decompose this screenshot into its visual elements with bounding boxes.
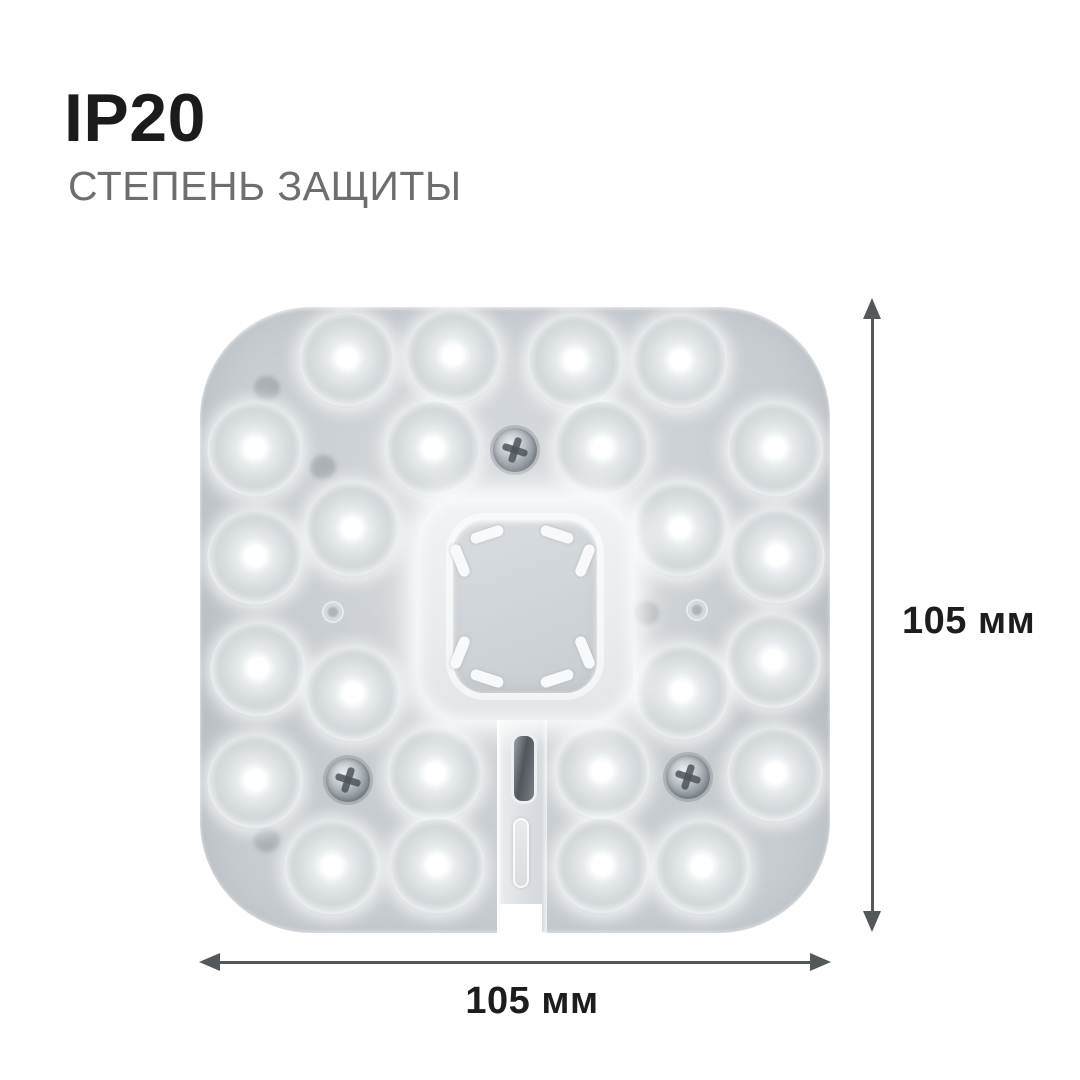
edge-notch-cutout	[500, 904, 542, 935]
pcb-shadow-spot	[254, 376, 280, 400]
led-lens	[729, 509, 825, 605]
magnet-cover	[453, 520, 597, 693]
led-lens	[385, 402, 481, 498]
arrow-left-icon	[199, 953, 220, 971]
height-dimension-label: 105 мм	[902, 602, 1062, 640]
arrow-right-icon	[810, 953, 831, 971]
led-lens	[727, 727, 823, 823]
led-lens	[527, 314, 623, 410]
led-lens	[632, 482, 728, 578]
led-lens	[387, 727, 483, 823]
pcb-shadow-spot	[254, 828, 280, 852]
phillips-screw	[666, 755, 710, 799]
pin-hole	[688, 601, 706, 619]
led-lens	[554, 819, 650, 915]
led-lens	[554, 402, 650, 498]
connector-contact-slot	[511, 733, 537, 804]
pcb-shadow-spot	[310, 455, 336, 479]
led-lens	[207, 734, 303, 830]
led-lens	[207, 402, 303, 498]
led-lens	[405, 309, 501, 405]
pcb-shadow-spot	[633, 601, 659, 625]
led-lens	[654, 820, 750, 916]
led-lens	[207, 510, 303, 606]
width-dimension-label: 105 мм	[452, 982, 612, 1020]
protection-rating-subtitle: СТЕПЕНЬ ЗАЩИТЫ	[68, 166, 462, 207]
led-lens	[299, 312, 395, 408]
arrow-up-icon	[863, 298, 881, 319]
led-module-photo	[200, 307, 830, 933]
phillips-screw	[493, 428, 537, 472]
protection-rating-title: IP20	[64, 84, 206, 152]
led-lens	[727, 402, 823, 498]
height-dimension-line	[871, 312, 874, 918]
connector-guide-slot	[513, 818, 529, 888]
phillips-screw	[326, 758, 370, 802]
led-lens	[389, 819, 485, 915]
led-lens	[284, 820, 380, 916]
led-lens	[725, 614, 821, 710]
led-lens	[210, 622, 306, 718]
led-lens	[305, 647, 401, 743]
led-lens	[632, 314, 728, 410]
arrow-down-icon	[863, 911, 881, 932]
led-lens	[634, 645, 730, 741]
product-spec-card: IP20 СТЕПЕНЬ ЗАЩИТЫ 105 мм 105 мм	[0, 0, 1080, 1080]
width-dimension-line	[214, 961, 816, 964]
pin-hole	[324, 603, 342, 621]
led-lens	[554, 725, 650, 821]
led-lens	[304, 482, 400, 578]
